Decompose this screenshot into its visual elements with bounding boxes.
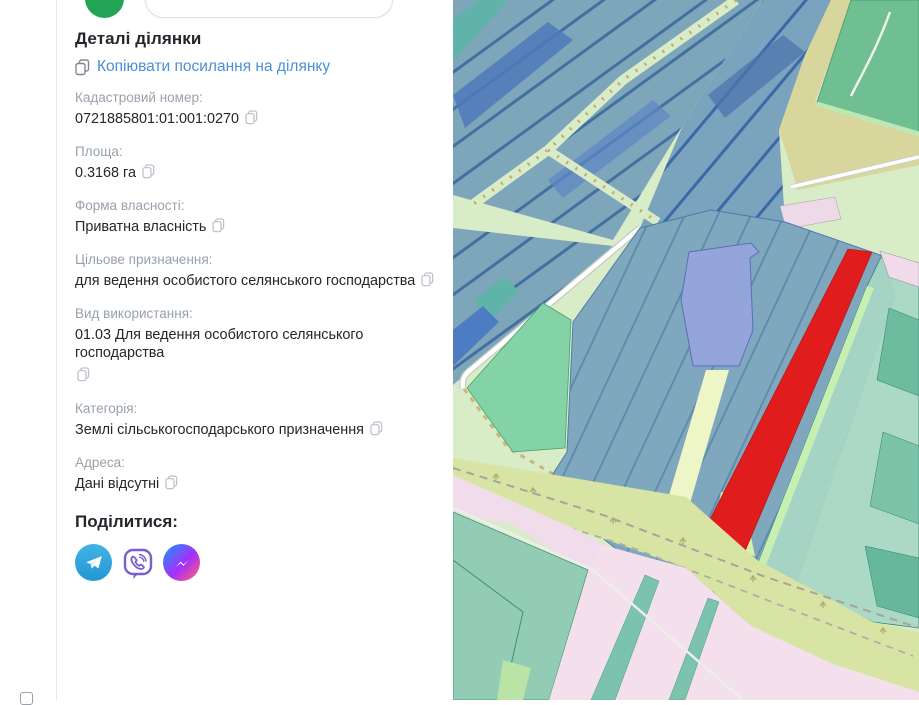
copy-value-button[interactable]: [142, 164, 155, 184]
share-telegram-button[interactable]: [75, 544, 112, 581]
field-category: Категорія: Землі сільськогосподарського …: [75, 401, 441, 441]
collapsed-sidebar[interactable]: [0, 0, 57, 700]
field-address: Адреса: Дані відсутні: [75, 455, 441, 495]
copy-value-button[interactable]: [421, 272, 434, 292]
share-buttons: [75, 544, 441, 581]
cadastral-map-canvas[interactable]: [453, 0, 919, 700]
page-title: Деталі ділянки: [75, 29, 441, 49]
field-cadastral-number: Кадастровий номер: 0721885801:01:001:027…: [75, 90, 441, 130]
copy-parcel-link-button[interactable]: Копіювати посилання на ділянку: [75, 58, 441, 76]
share-messenger-button[interactable]: [163, 544, 200, 581]
messenger-icon: [171, 552, 193, 574]
copy-value-button[interactable]: [245, 110, 258, 130]
field-purpose: Цільове призначення: для ведення особист…: [75, 252, 441, 292]
help-icon[interactable]: [20, 692, 33, 705]
app-logo[interactable]: [85, 0, 124, 18]
field-area: Площа: 0.3168 га: [75, 144, 441, 184]
copy-value-button[interactable]: [212, 218, 225, 238]
parcel-details-panel: Деталі ділянки Копіювати посилання на ді…: [57, 0, 453, 700]
field-usage-type: Вид використання: 01.03 Для ведення особ…: [75, 306, 441, 387]
field-ownership: Форма власності: Приватна власність: [75, 198, 441, 238]
copy-value-button[interactable]: [165, 475, 178, 495]
copy-value-button[interactable]: [370, 421, 383, 441]
telegram-icon: [83, 552, 105, 574]
copy-value-button[interactable]: [77, 367, 441, 387]
share-title: Поділитися:: [75, 512, 441, 532]
copy-parcel-link-label: Копіювати посилання на ділянку: [97, 58, 330, 76]
viber-icon: [121, 546, 155, 580]
share-viber-button[interactable]: [119, 544, 156, 581]
search-input[interactable]: [145, 0, 393, 18]
copy-icon: [75, 59, 90, 76]
